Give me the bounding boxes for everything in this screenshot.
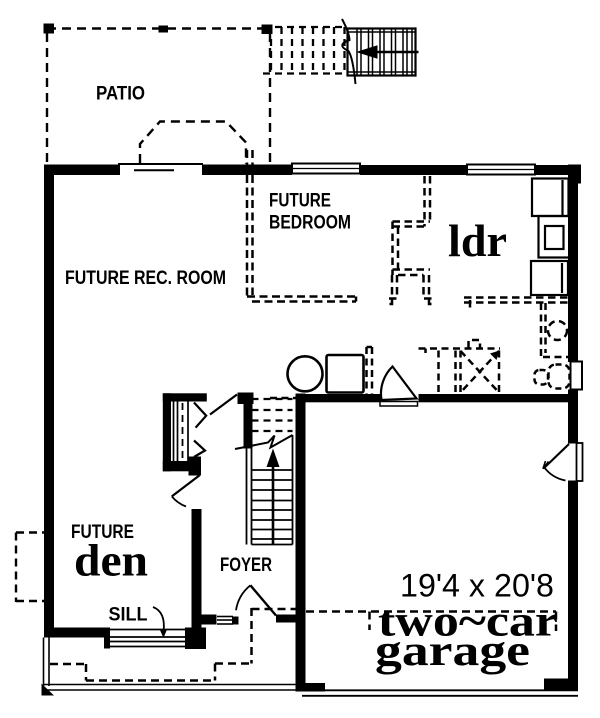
svg-text:BEDROOM: BEDROOM [269, 213, 351, 234]
svg-text:ldr: ldr [448, 215, 507, 266]
svg-text:SILL: SILL [109, 605, 148, 626]
svg-text:FUTURE: FUTURE [269, 191, 331, 212]
svg-text:garage: garage [375, 626, 530, 675]
svg-text:FOYER: FOYER [220, 555, 272, 576]
svg-text:PATIO: PATIO [96, 84, 145, 105]
svg-text:den: den [74, 535, 148, 586]
svg-text:FUTURE REC. ROOM: FUTURE REC. ROOM [65, 268, 226, 289]
